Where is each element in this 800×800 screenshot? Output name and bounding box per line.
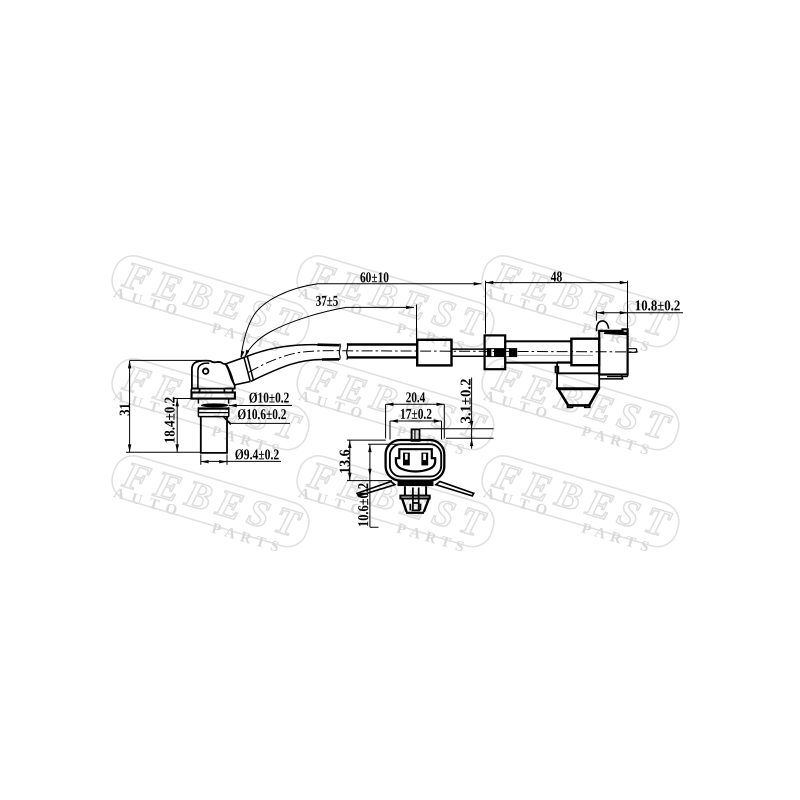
svg-text:Ø10.6±0.2: Ø10.6±0.2 xyxy=(237,407,286,423)
svg-text:Ø9.4±0.2: Ø9.4±0.2 xyxy=(235,447,280,463)
svg-text:3.1±0.2: 3.1±0.2 xyxy=(458,379,474,424)
svg-text:Ø10±0.2: Ø10±0.2 xyxy=(249,391,290,407)
svg-text:17±0.2: 17±0.2 xyxy=(400,407,432,423)
svg-text:18.4±0.2: 18.4±0.2 xyxy=(162,397,178,444)
svg-text:31: 31 xyxy=(117,403,133,416)
svg-text:10.6±0.2: 10.6±0.2 xyxy=(356,483,372,527)
svg-text:60±10: 60±10 xyxy=(360,270,389,286)
svg-text:20.4: 20.4 xyxy=(406,390,426,406)
svg-text:13.6: 13.6 xyxy=(337,449,353,474)
svg-text:37±5: 37±5 xyxy=(316,294,339,310)
svg-text:10.8±0.2: 10.8±0.2 xyxy=(635,298,681,314)
svg-text:48: 48 xyxy=(551,269,563,285)
